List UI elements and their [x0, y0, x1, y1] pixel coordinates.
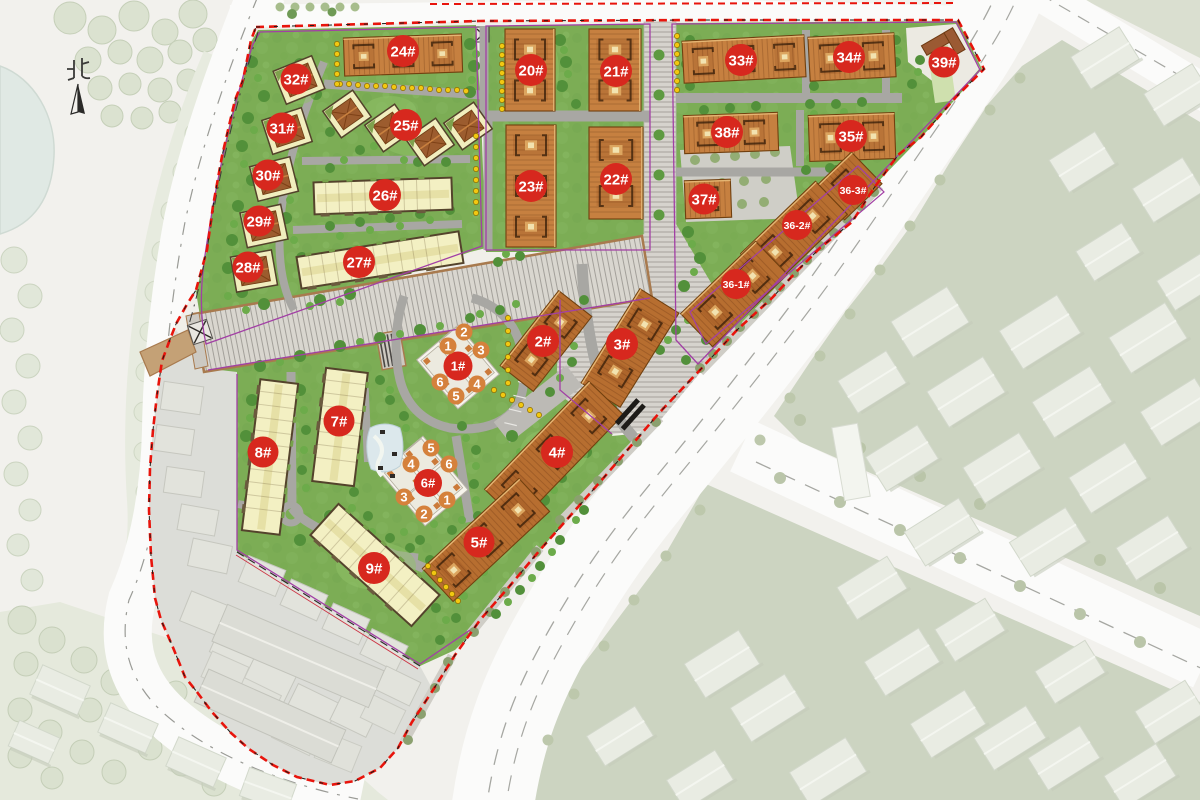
svg-text:26#: 26#: [372, 187, 398, 204]
svg-text:22#: 22#: [603, 171, 629, 188]
svg-text:7#: 7#: [331, 413, 348, 430]
svg-text:6: 6: [445, 457, 452, 472]
svg-text:4: 4: [473, 377, 481, 392]
svg-text:8#: 8#: [255, 444, 272, 461]
svg-text:28#: 28#: [235, 259, 261, 276]
svg-text:1#: 1#: [451, 359, 466, 374]
svg-text:29#: 29#: [246, 213, 272, 230]
svg-text:5: 5: [452, 389, 459, 404]
svg-text:34#: 34#: [836, 49, 862, 66]
svg-text:36-2#: 36-2#: [784, 220, 811, 232]
svg-text:38#: 38#: [714, 124, 740, 141]
svg-text:5: 5: [427, 441, 434, 456]
svg-text:3: 3: [477, 343, 484, 358]
svg-text:3#: 3#: [614, 336, 631, 353]
svg-text:3: 3: [400, 490, 407, 505]
svg-text:32#: 32#: [283, 71, 309, 88]
svg-text:5#: 5#: [471, 534, 488, 551]
svg-text:36-3#: 36-3#: [840, 185, 867, 197]
svg-text:4: 4: [407, 457, 415, 472]
svg-text:37#: 37#: [691, 191, 717, 208]
svg-text:24#: 24#: [390, 43, 416, 60]
svg-text:35#: 35#: [838, 128, 864, 145]
svg-text:1: 1: [443, 493, 450, 508]
svg-text:20#: 20#: [518, 62, 544, 79]
svg-text:4#: 4#: [549, 444, 566, 461]
svg-text:9#: 9#: [366, 560, 383, 577]
svg-text:30#: 30#: [255, 167, 281, 184]
svg-text:2#: 2#: [535, 333, 552, 350]
svg-text:21#: 21#: [603, 63, 629, 80]
svg-text:36-1#: 36-1#: [723, 279, 750, 291]
svg-text:2: 2: [420, 507, 427, 522]
svg-text:6: 6: [436, 375, 443, 390]
svg-text:1: 1: [444, 339, 451, 354]
svg-text:31#: 31#: [269, 120, 295, 137]
svg-text:33#: 33#: [728, 52, 754, 69]
svg-text:6#: 6#: [421, 476, 436, 491]
svg-text:27#: 27#: [346, 254, 372, 271]
svg-text:2: 2: [460, 325, 467, 340]
svg-text:39#: 39#: [931, 54, 957, 71]
svg-text:23#: 23#: [518, 178, 544, 195]
svg-text:25#: 25#: [393, 117, 419, 134]
